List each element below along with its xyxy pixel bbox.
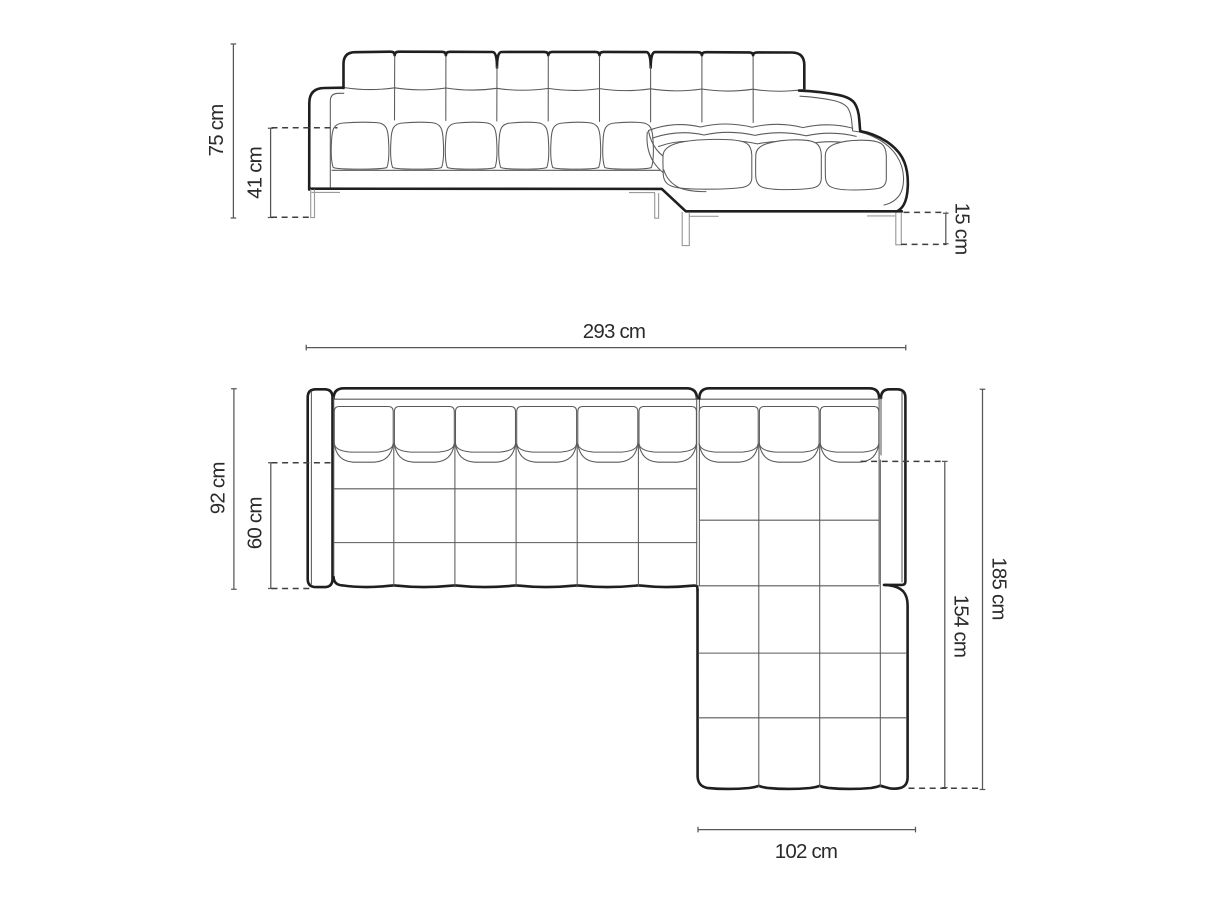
svg-text:92 cm: 92 cm [206, 462, 229, 514]
svg-text:15 cm: 15 cm [950, 203, 973, 255]
svg-text:60 cm: 60 cm [243, 497, 266, 549]
svg-text:75 cm: 75 cm [205, 105, 228, 157]
svg-text:154 cm: 154 cm [949, 595, 972, 657]
svg-text:185 cm: 185 cm [987, 557, 1010, 619]
svg-text:102 cm: 102 cm [775, 840, 837, 863]
svg-text:41 cm: 41 cm [243, 147, 266, 199]
svg-text:293 cm: 293 cm [583, 320, 645, 343]
